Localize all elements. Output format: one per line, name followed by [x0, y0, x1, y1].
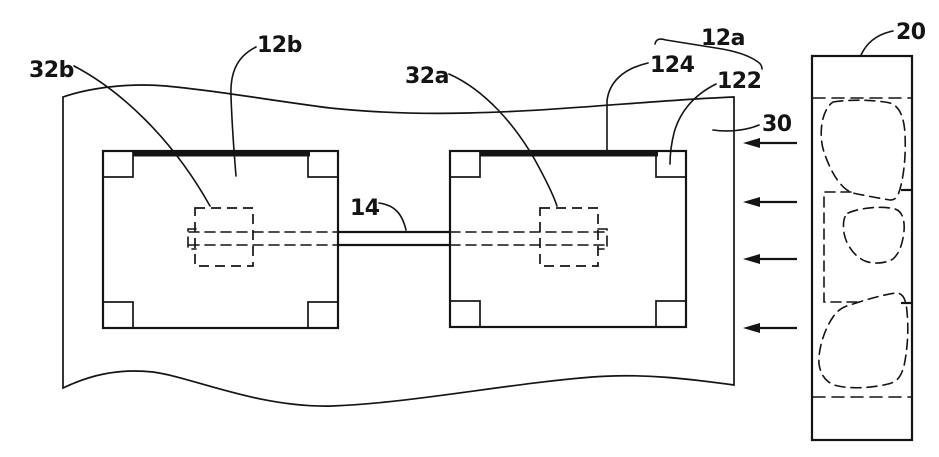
label-122: 122 [717, 69, 761, 94]
label-32b: 32b [29, 58, 74, 83]
label-12b: 12b [257, 33, 302, 58]
left-arrow-icon [743, 254, 797, 264]
carrier-blob-upper [821, 100, 905, 200]
leader-124 [607, 63, 648, 150]
left-corner-notch-tl [103, 151, 133, 177]
label-30: 30 [762, 112, 792, 137]
left-arrow-icon [743, 138, 797, 148]
left-die-frame [103, 151, 338, 328]
carrier-pocket-dashed-rect [824, 192, 857, 302]
leader-14 [379, 203, 406, 230]
carrier-outline [812, 56, 912, 440]
carrier-blob-middle [843, 207, 904, 263]
reference-labels: 32b 12b 32a 12a 124 122 30 20 14 [29, 20, 926, 221]
label-124: 124 [650, 53, 695, 78]
left-corner-notch-tr [308, 151, 338, 177]
leader-20 [861, 31, 893, 55]
leader-30 [713, 125, 759, 131]
label-12a: 12a [701, 26, 745, 51]
left-pad-dashed [195, 208, 253, 266]
left-corner-notch-br [308, 302, 338, 328]
left-corner-notch-bl [103, 302, 133, 328]
label-14: 14 [350, 196, 380, 221]
leader-32b [74, 66, 210, 206]
right-corner-notch-tl [450, 151, 480, 177]
carrier-strip [812, 56, 912, 440]
right-corner-notch-br [656, 301, 686, 327]
leader-32a [449, 74, 557, 206]
label-20: 20 [896, 20, 926, 45]
left-arrow-icon [743, 323, 797, 333]
right-corner-notch-bl [450, 301, 480, 327]
right-die-frame [450, 151, 686, 327]
patent-figure: 32b 12b 32a 12a 124 122 30 20 14 [0, 0, 939, 457]
carrier-blob-lower [819, 293, 908, 388]
component-left [103, 151, 338, 328]
label-32a: 32a [405, 64, 449, 89]
leader-12b [231, 47, 256, 176]
component-right [450, 151, 686, 327]
right-pad-dashed [540, 208, 598, 266]
bridge-bar [188, 229, 607, 249]
press-arrows [743, 138, 797, 333]
left-arrow-icon [743, 197, 797, 207]
